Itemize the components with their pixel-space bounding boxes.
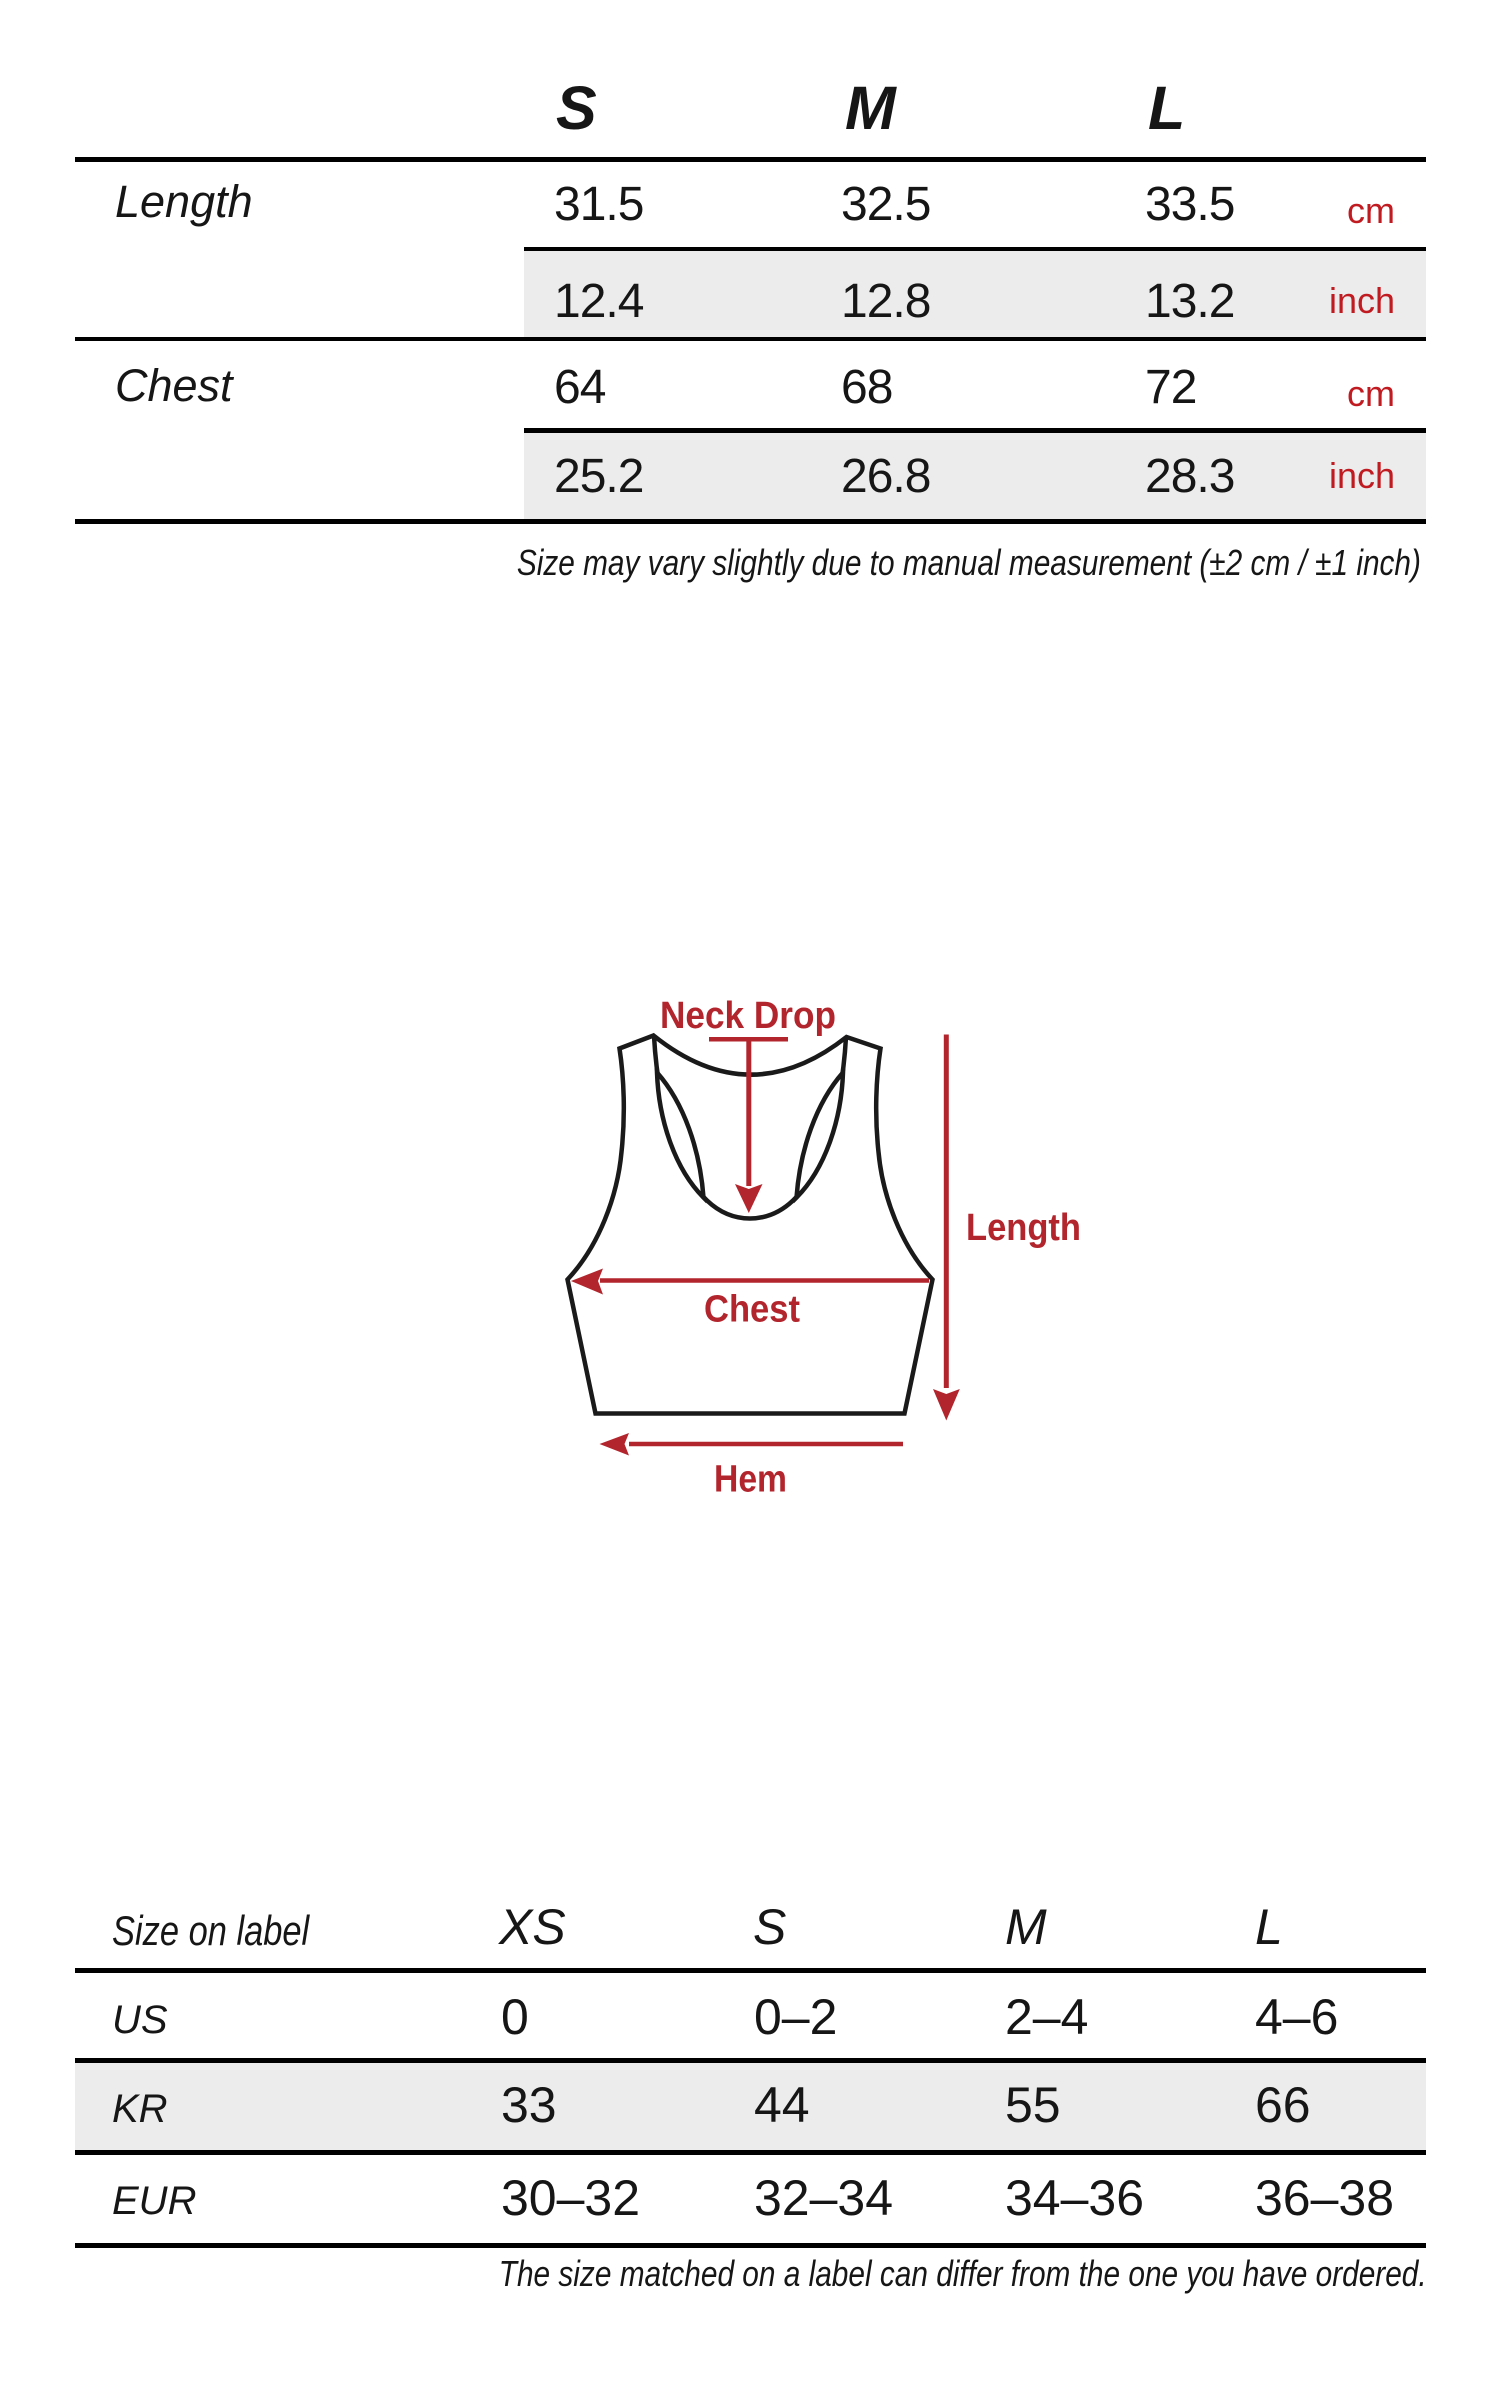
svg-text:Hem: Hem [714,1459,787,1501]
svg-text:Chest: Chest [704,1289,800,1331]
svg-text:Length: Length [966,1207,1081,1249]
svg-text:Neck Drop: Neck Drop [660,995,836,1037]
